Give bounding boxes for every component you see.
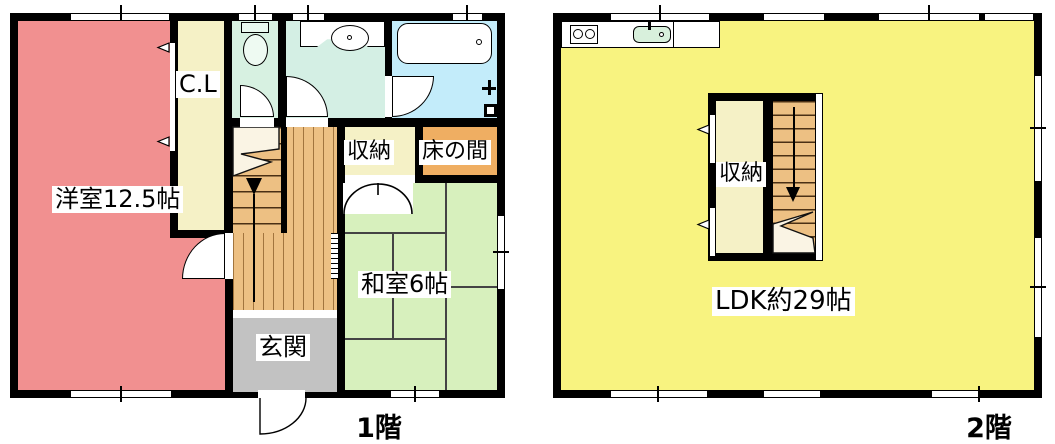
bathtub-drain-icon [476, 39, 482, 45]
stair-break-line-2f [773, 208, 815, 253]
window-tick [978, 386, 980, 402]
storage-2f-slider-track [710, 115, 715, 163]
window [931, 390, 980, 398]
front-door-swing [260, 398, 308, 438]
storage-door-opening [345, 175, 415, 183]
japanese-room-double-door-swing [343, 183, 413, 215]
entrance-door-opening [258, 390, 305, 398]
window-tick [414, 386, 416, 402]
closet-label: C.L [176, 71, 220, 98]
stair-direction-arrow-1f [246, 178, 262, 195]
burner-icon [573, 29, 583, 39]
toilet-tank-icon [241, 22, 269, 33]
vanity-drain-icon [347, 35, 352, 40]
tatami-line [345, 338, 445, 340]
stair-hall-wall [281, 127, 287, 233]
bath-door-opening [385, 76, 392, 117]
window [763, 390, 821, 398]
window [984, 13, 1034, 21]
storage-1f-label: 収納 [344, 140, 394, 165]
washroom-door-opening [286, 118, 328, 127]
entrance-label: 玄関 [256, 334, 310, 361]
window [610, 390, 708, 398]
window-tick [659, 5, 661, 21]
slider-arrow-icon [697, 219, 710, 230]
stair-direction-line-2f [793, 107, 795, 187]
floor2-caption: 2階 [946, 406, 1032, 444]
stair-direction-arrow-2f [786, 187, 800, 202]
bath-faucet-icon [488, 80, 491, 95]
floor-plan-canvas: 洋室12.5帖 C.L 収納 床の間 和室6帖 玄関 1階 収納 LDK約29帖… [0, 0, 1055, 444]
kitchen-sink-icon [633, 26, 671, 43]
japanese-room-label: 和室6帖 [358, 271, 451, 298]
tatami-line [345, 232, 445, 234]
window-tick [120, 386, 122, 402]
burner-icon [585, 29, 595, 39]
stair-direction-line-1f [253, 194, 255, 302]
closet-slider-track [170, 43, 175, 151]
entrance-step [233, 310, 337, 318]
slider-arrow-icon [157, 136, 170, 147]
window-tick [657, 386, 659, 402]
window-tick [120, 5, 122, 21]
window-tick [307, 5, 309, 21]
toilet-bowl-icon [243, 34, 268, 66]
western-room-label: 洋室12.5帖 [52, 186, 183, 213]
western-room-door-opening [225, 233, 233, 279]
kitchen-drain-icon [659, 32, 664, 37]
tatami-line [447, 286, 497, 288]
stair-break-line-1f [233, 127, 281, 175]
counter-divider [673, 21, 674, 48]
window [763, 13, 825, 21]
slider-arrow-icon [157, 42, 170, 53]
slider-arrow-icon [697, 124, 710, 135]
storage-2f-slider-track [710, 208, 715, 256]
window-tick [928, 5, 930, 21]
window-tick [1030, 286, 1046, 288]
stair-handrail-strip [815, 93, 823, 261]
sliding-door-track [331, 233, 338, 279]
tokonoma-label: 床の間 [419, 140, 491, 165]
window-tick [254, 5, 256, 21]
ldk-label: LDK約29帖 [712, 287, 855, 316]
toilet-door-opening [240, 118, 274, 127]
floor1-caption: 1階 [336, 406, 422, 444]
closet-cl [178, 21, 224, 230]
bath-control-inner [487, 107, 494, 114]
window-tick [466, 5, 468, 21]
window-tick [1030, 127, 1046, 129]
window-tick [493, 251, 509, 253]
storage-2f-label: 収納 [716, 162, 766, 187]
